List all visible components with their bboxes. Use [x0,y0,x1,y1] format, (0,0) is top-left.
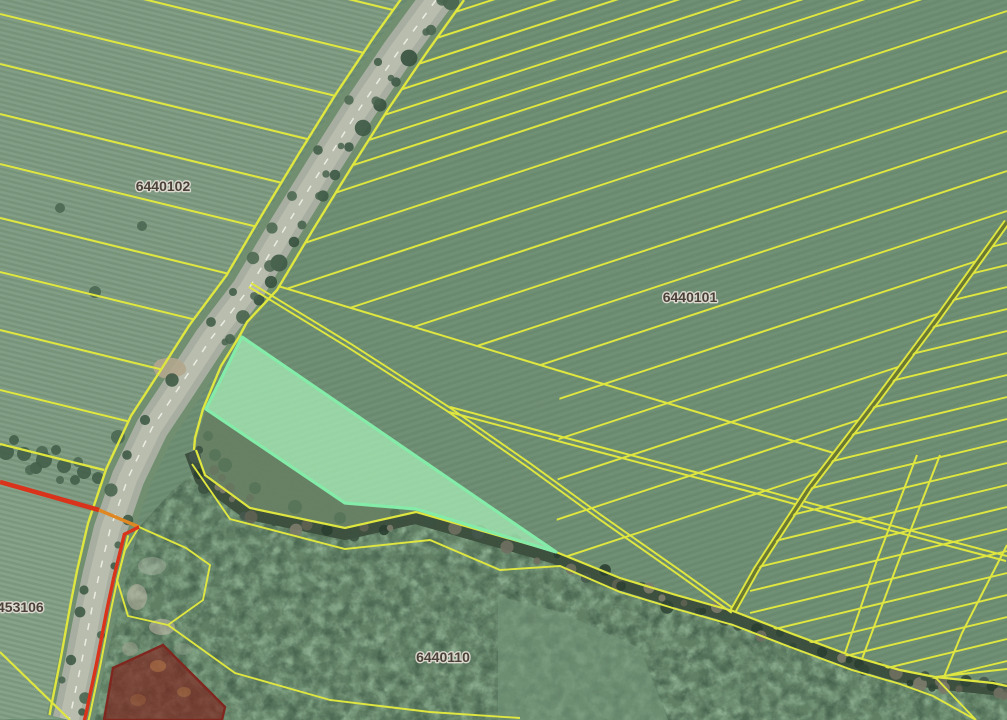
svg-text:6440101: 6440101 [663,289,718,305]
svg-text:6440110: 6440110 [416,649,470,665]
svg-text:6440102: 6440102 [136,178,191,194]
svg-text:453106: 453106 [0,599,44,615]
